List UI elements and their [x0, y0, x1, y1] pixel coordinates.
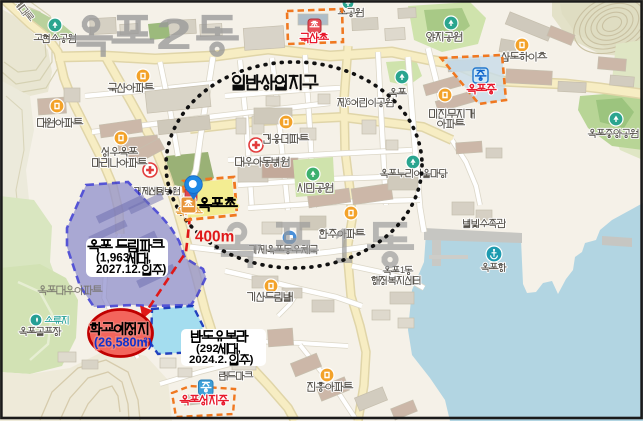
svg-text:,: , — [148, 252, 151, 265]
svg-text:): ) — [250, 354, 254, 366]
svg-text:2: 2 — [156, 10, 192, 59]
svg-text:): ) — [148, 336, 152, 350]
svg-text:): ) — [163, 264, 167, 276]
svg-text:400m: 400m — [195, 228, 234, 245]
svg-text:1: 1 — [400, 265, 405, 276]
svg-text:2024.2.: 2024.2. — [189, 354, 227, 366]
svg-text:(26,580m: (26,580m — [94, 335, 148, 349]
svg-text:6: 6 — [346, 97, 351, 108]
svg-text:(1,963: (1,963 — [96, 252, 130, 265]
svg-text:,: , — [238, 343, 241, 355]
svg-text:1: 1 — [334, 218, 353, 274]
svg-text:2027.12.: 2027.12. — [96, 264, 141, 276]
